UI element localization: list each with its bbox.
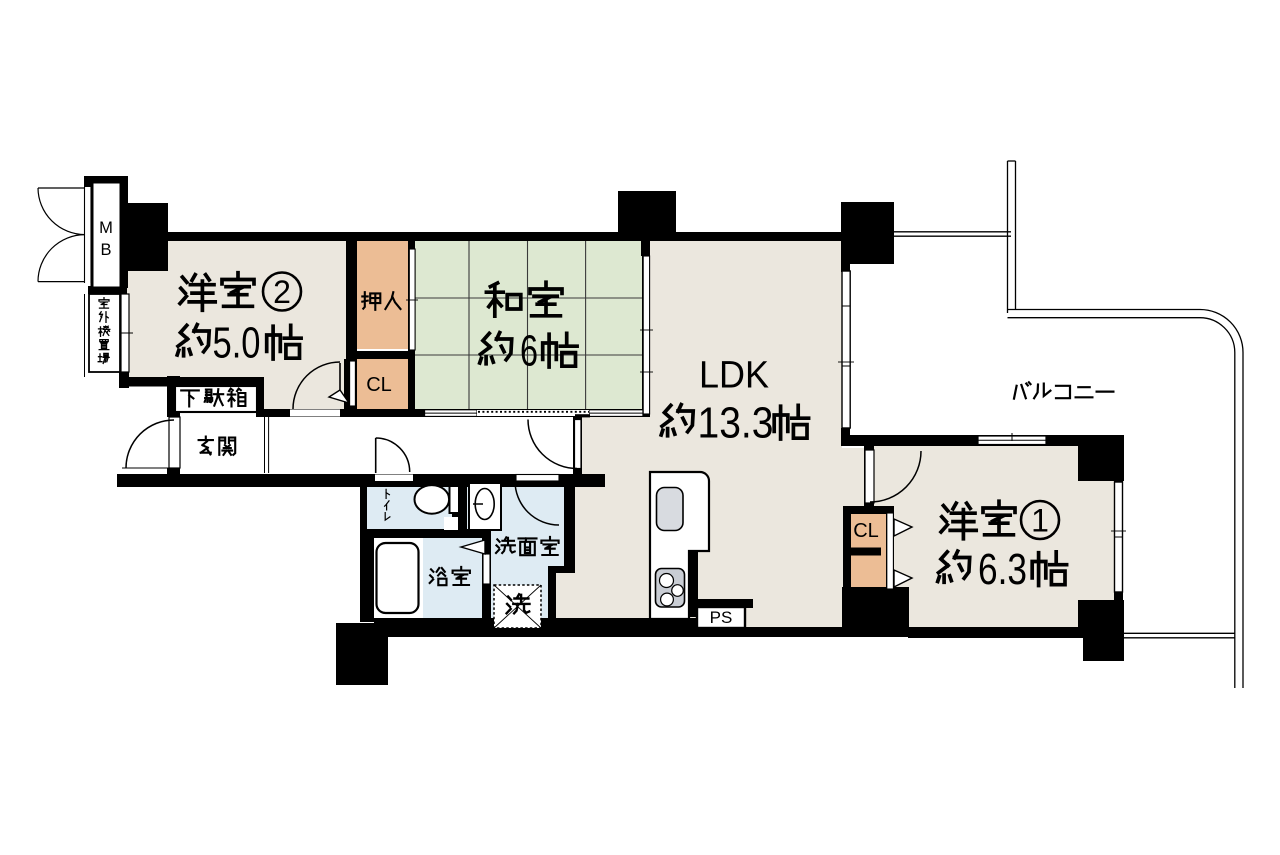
svg-text:5.0: 5.0 bbox=[213, 319, 261, 368]
svg-text:13.3: 13.3 bbox=[698, 399, 774, 448]
svg-text:CL: CL bbox=[853, 520, 879, 542]
svg-text:CL: CL bbox=[366, 374, 392, 396]
svg-text:6.3: 6.3 bbox=[978, 545, 1027, 594]
svg-text:1: 1 bbox=[1031, 503, 1049, 539]
svg-text:LDK: LDK bbox=[699, 353, 769, 395]
svg-text:PS: PS bbox=[710, 608, 733, 627]
svg-text:M: M bbox=[99, 219, 113, 237]
svg-text:2: 2 bbox=[273, 274, 291, 310]
svg-text:B: B bbox=[100, 241, 111, 259]
svg-text:6: 6 bbox=[520, 327, 538, 376]
